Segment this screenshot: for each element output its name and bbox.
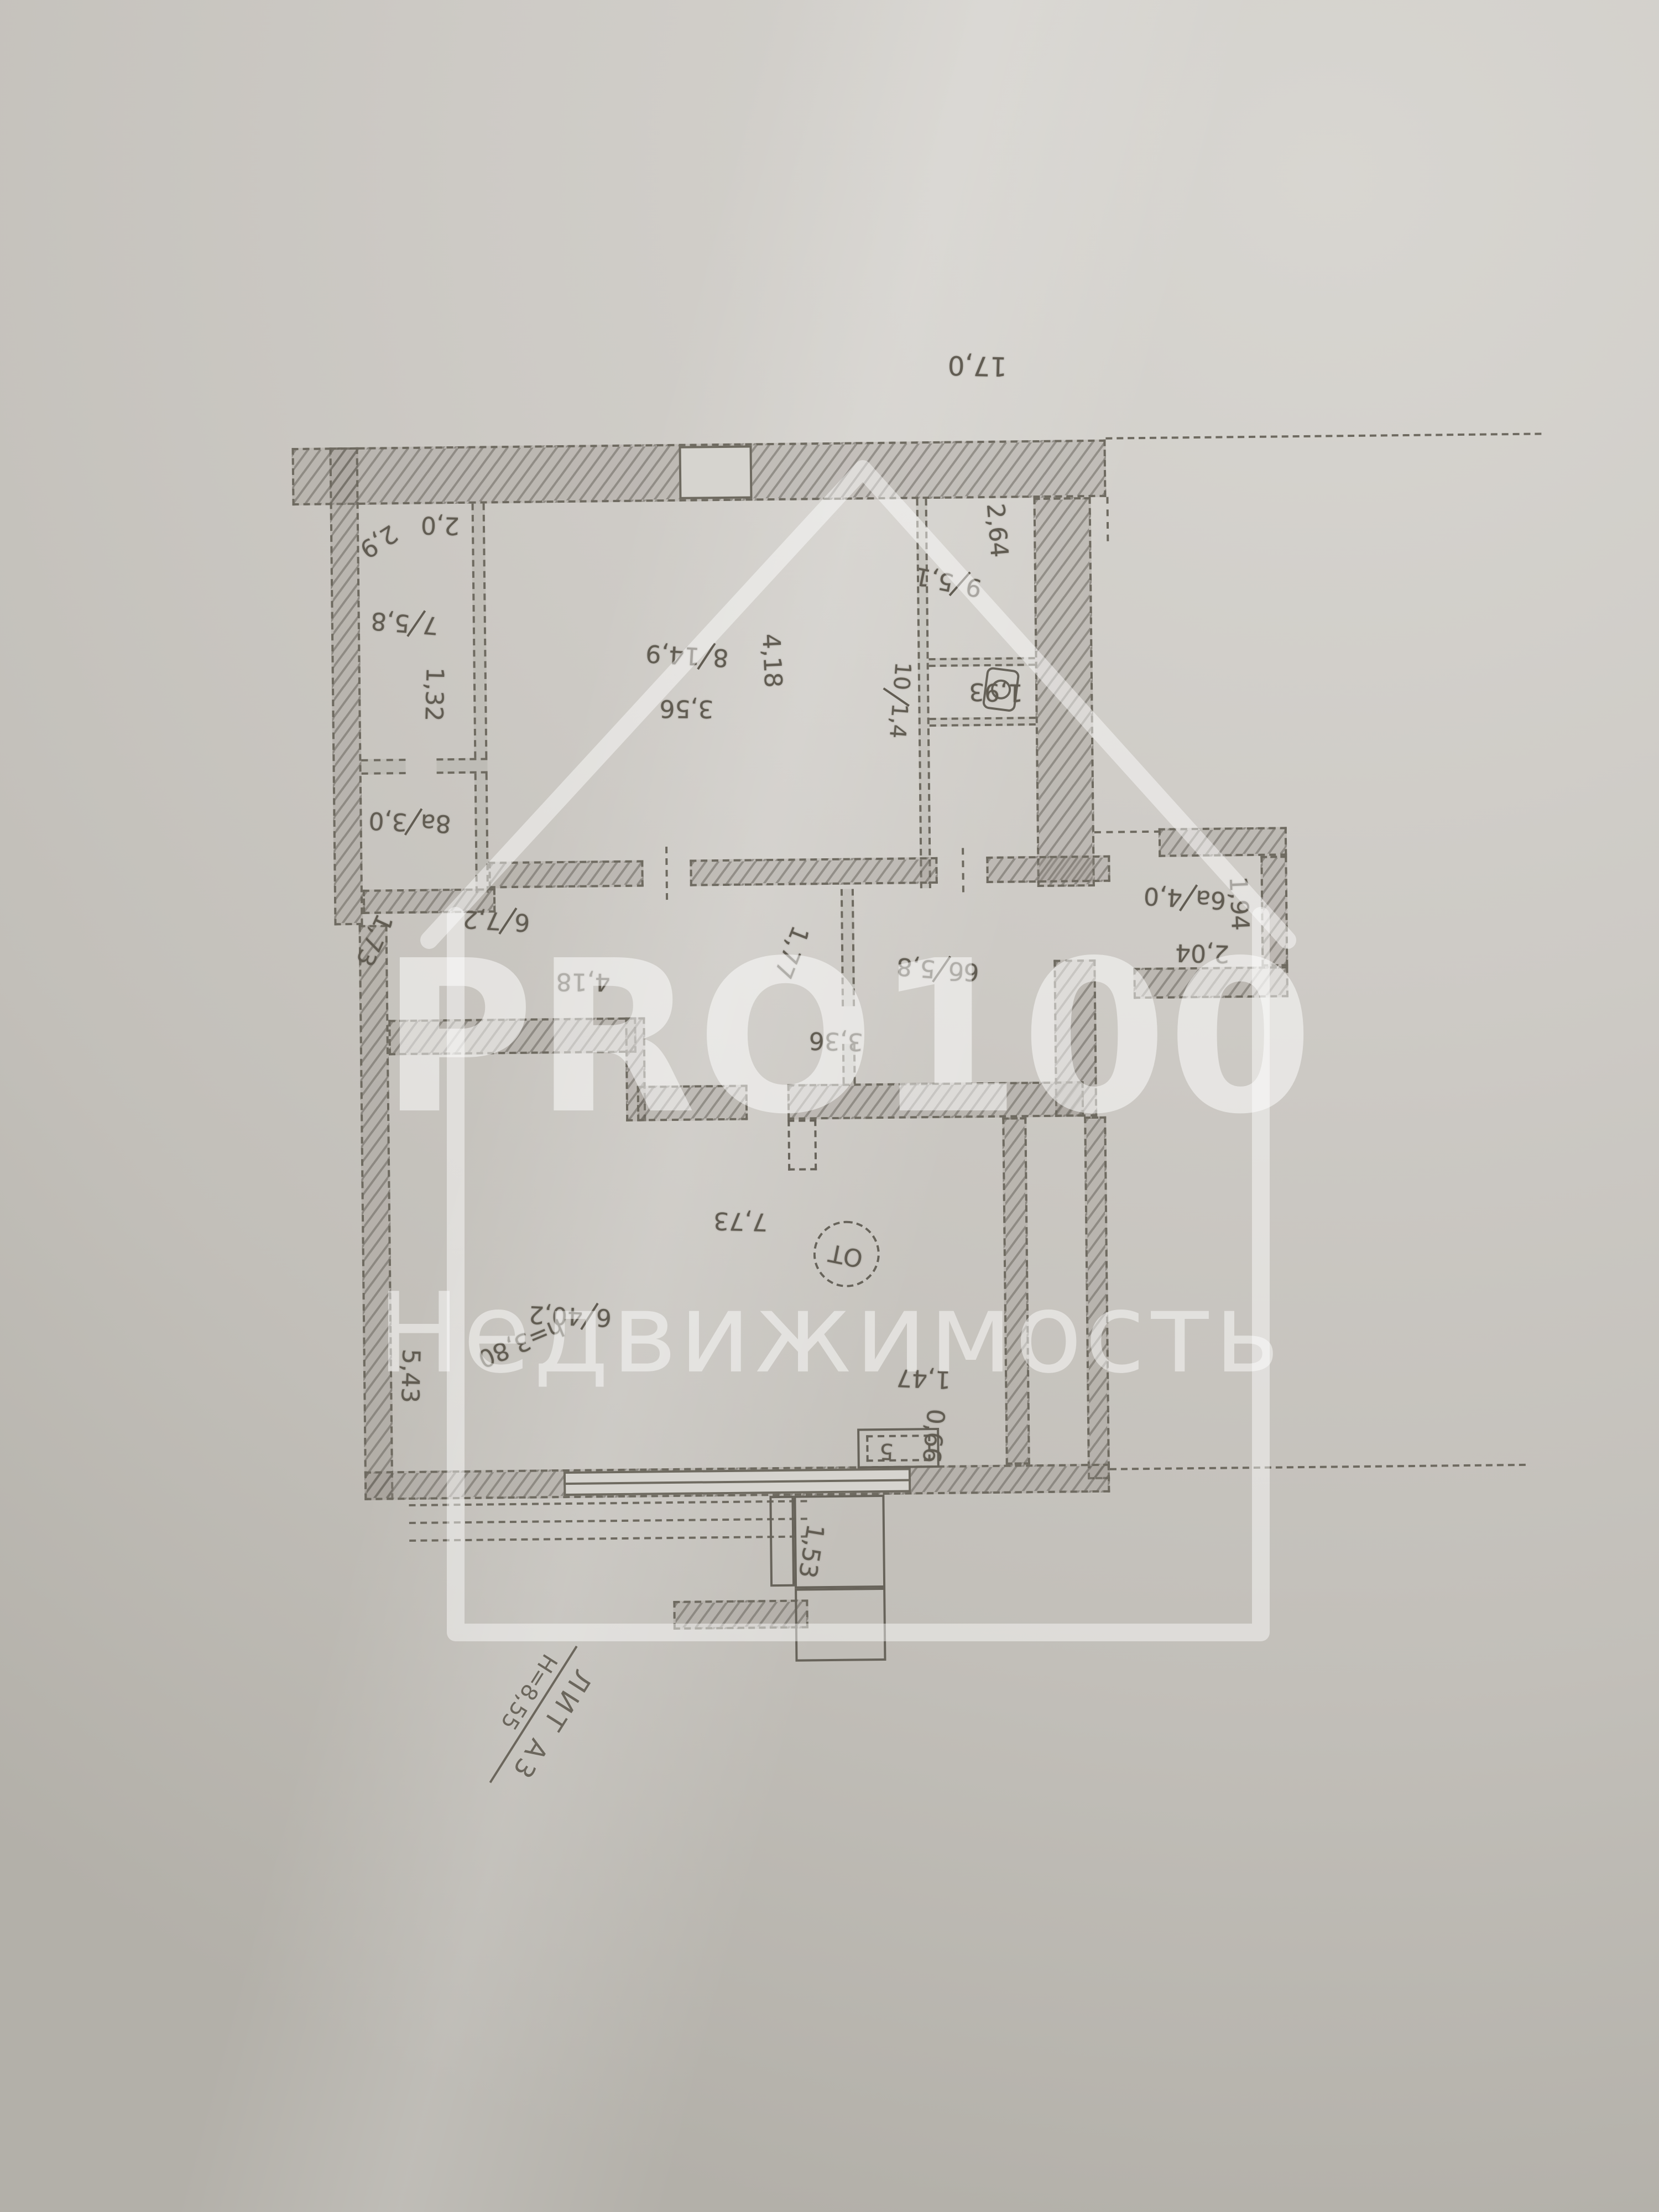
room-8a-area: 3,0 [368,808,408,834]
dim-room7-depth: 2,9 [356,520,401,562]
paper-sheet: 17,0 [0,0,1659,2212]
dim-room8-depth: 4,18 [758,633,785,688]
boundary-line-neighbor-top [1105,432,1541,439]
watermark-subtitle-text: Недвижимость [332,1270,1327,1398]
annex-link-top [1094,831,1161,833]
room-7-number: 7 [422,612,439,638]
steps-line-1 [409,1500,807,1506]
room-9-area: 5,1 [913,563,956,594]
dim-overall-width: 17,0 [947,352,1007,380]
room-8-label: 814,9 [645,640,729,670]
room-10-label: 101,4 [883,661,911,739]
room-8-number: 8 [712,644,729,670]
wall-corridor-top-a [488,860,643,889]
room-8-area: 14,9 [645,640,700,668]
wall-corridor-top-c [986,855,1110,883]
wall-room8-room9 [916,499,931,888]
room-6a-label: 6а4,0 [1143,883,1227,912]
porch-lower-step [795,1588,886,1662]
door-tick-corridor-2 [962,848,964,892]
dim-room9-width: 1,93 [969,679,1024,705]
wall-room10-bottom [930,717,1036,727]
room-10-number: 10 [887,661,911,691]
wall-annex-top [1159,827,1287,857]
wall-left-exterior-upper [329,447,363,925]
liter-annotation: ЛИТ А3 Н=8,55 [465,1630,608,1802]
wall-room7-room8a-left [361,759,405,775]
wall-edge-top-right [1106,497,1109,541]
window-top-wall [679,445,752,499]
wall-right-exterior-upper [1034,497,1095,887]
dim-room7-width: 2,0 [420,512,460,538]
room-7-area: 5,8 [370,608,410,635]
dim-hall-width: 7,73 [713,1208,768,1234]
wall-room7-room8 [472,503,488,758]
dim-room8-width: 3,56 [659,696,713,721]
stove-number: 5 [879,1437,894,1459]
dim-room8a-width: 1,32 [421,667,446,722]
door-tick-corridor-1 [665,847,668,900]
boundary-line-neighbor-bottom [1110,1464,1526,1470]
room-6a-area: 4,0 [1143,883,1183,910]
dim-room9-depth: 2,64 [983,503,1011,559]
room-6a-number: 6а [1195,886,1227,912]
heating-stamp-text: ОТ [827,1240,865,1270]
steps-line-3 [409,1535,807,1542]
room-10-area: 1,4 [883,702,908,739]
room-7-label: 75,8 [370,608,439,637]
steps-line-2 [409,1517,807,1524]
room-8a-number: 8а [420,810,452,836]
wall-corridor-top-b [690,857,937,886]
porch-step-wall [673,1599,808,1630]
photo-of-floor-plan: 17,0 [0,0,1659,2212]
dim-stove-depth: 0,66 [919,1408,948,1464]
chimney-duct [769,1496,795,1587]
wall-room8a-right [474,773,489,893]
wall-room9-room10 [929,657,1035,667]
wall-room7-room8a-right [436,758,487,774]
watermark-brand-text: PRO100 [380,918,1279,1161]
room-8a-label: 8а3,0 [368,808,452,836]
